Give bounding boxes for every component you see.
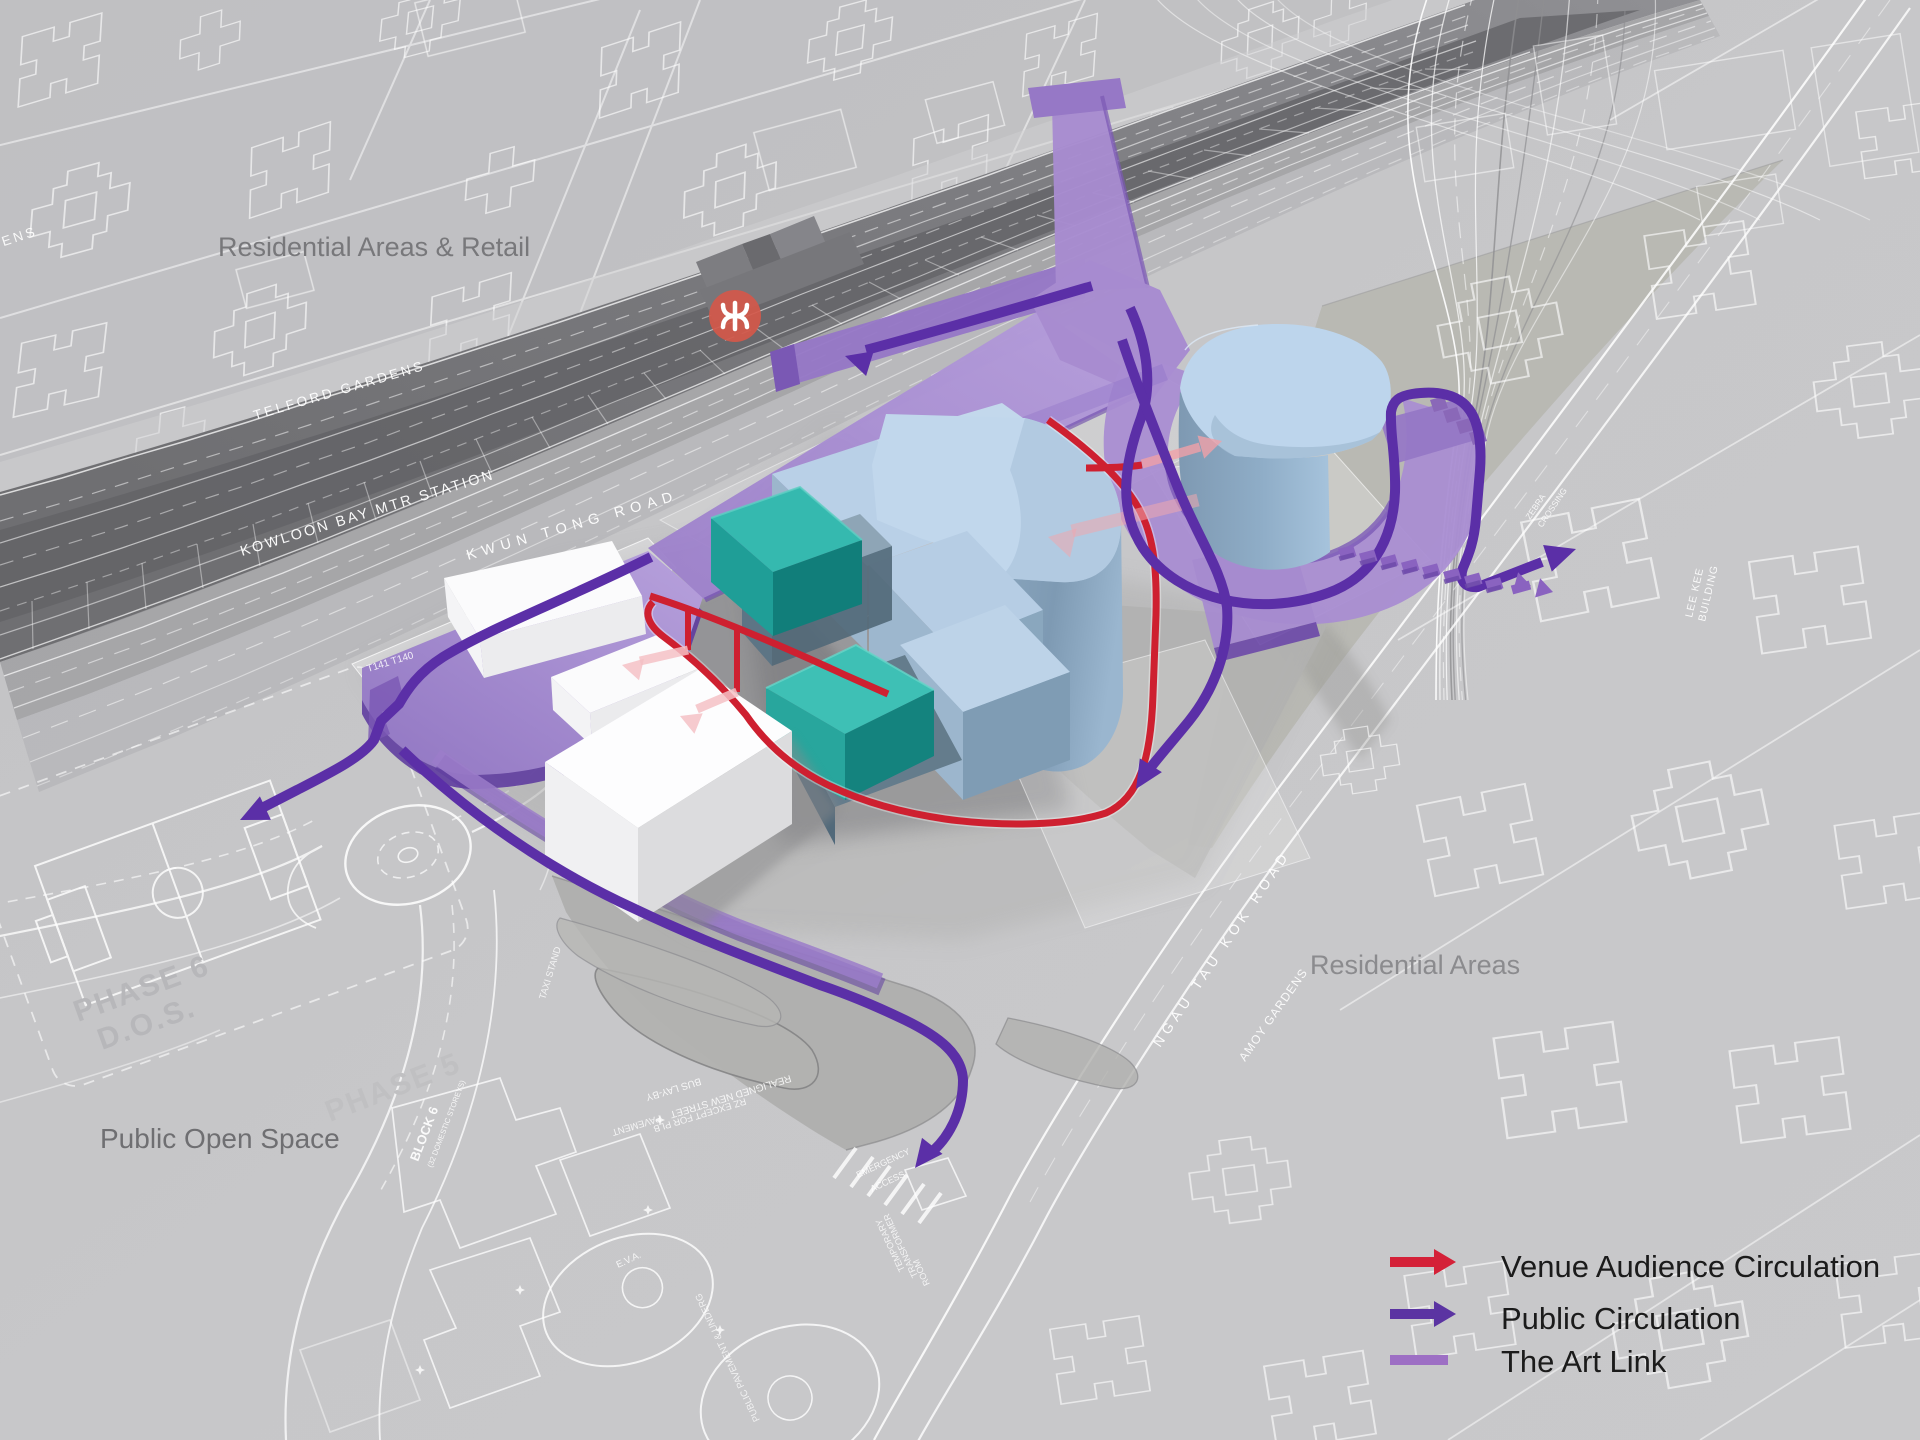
- svg-text:Residential Areas & Retail: Residential Areas & Retail: [218, 232, 530, 262]
- svg-text:Public Open Space: Public Open Space: [100, 1123, 340, 1154]
- svg-text:The Art Link: The Art Link: [1501, 1344, 1667, 1379]
- svg-text:Public Circulation: Public Circulation: [1501, 1301, 1741, 1336]
- svg-text:Residential Areas: Residential Areas: [1310, 950, 1520, 980]
- svg-text:Venue Audience Circulation: Venue Audience Circulation: [1501, 1249, 1880, 1284]
